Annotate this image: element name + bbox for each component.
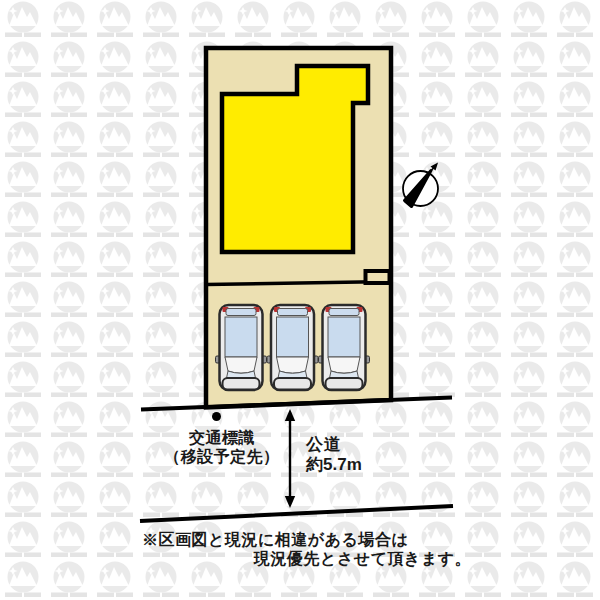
building-footprint [222,66,368,252]
boundary-box [366,271,390,283]
traffic-sign-line1: 交通標識 [152,429,292,448]
plot-layout-diagram: 交通標識 （移設予定先） 公道 約5.7m ※区画図と現況に相違がある場合は 現… [0,0,600,600]
road-name: 公道 [306,435,362,455]
disclaimer-line2: 現況優先とさせて頂きます。 [254,550,471,569]
traffic-sign-label: 交通標識 （移設予定先） [152,429,292,467]
road-label: 公道 約5.7m [306,435,362,475]
parking-car [319,305,370,390]
dot-marker-icon [212,412,221,421]
compass-north-icon [403,163,438,207]
disclaimer-line1: ※区画図と現況に相違がある場合は [142,531,408,548]
disclaimer-text: ※区画図と現況に相違がある場合は 現況優先とさせて頂きます。 [142,531,471,569]
road-edge-line-lower [140,506,453,521]
traffic-sign-line2: （移設予定先） [152,448,292,467]
parking-car [216,305,267,390]
road-width-value: 約5.7m [306,455,362,475]
parking-car [267,305,318,390]
